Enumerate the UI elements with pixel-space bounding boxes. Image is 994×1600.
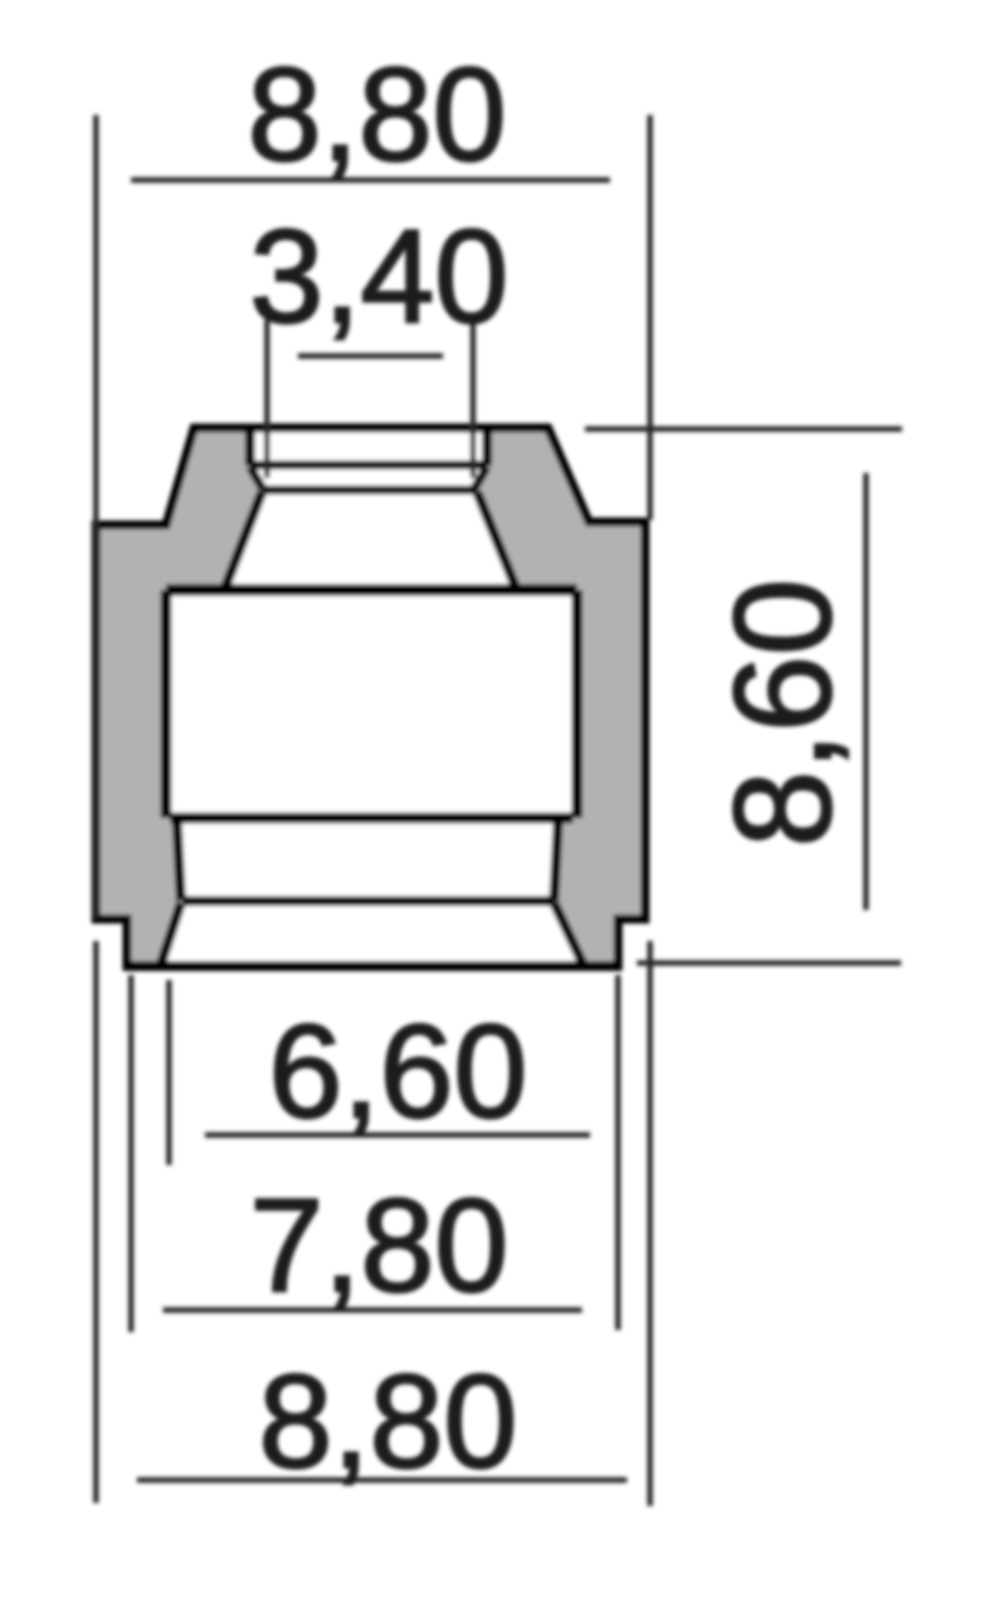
svg-text:3,40: 3,40 <box>250 203 509 351</box>
svg-text:8,80: 8,80 <box>248 41 507 189</box>
svg-text:8,60: 8,60 <box>706 579 860 848</box>
svg-text:7,80: 7,80 <box>250 1172 509 1320</box>
svg-text:8,80: 8,80 <box>259 1348 518 1496</box>
svg-text:6,60: 6,60 <box>269 998 528 1146</box>
